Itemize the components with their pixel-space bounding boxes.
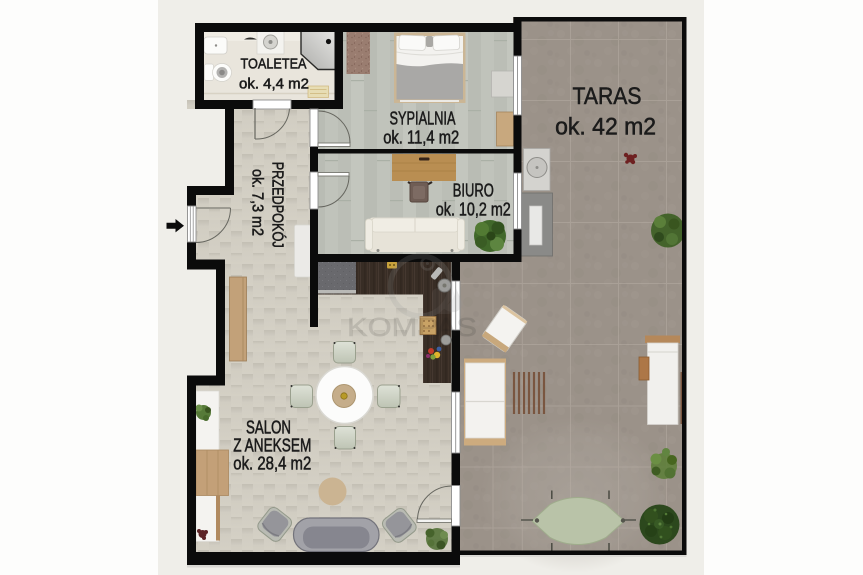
svg-text:SYPIALNIA: SYPIALNIA <box>390 109 456 129</box>
svg-text:Z ANEKSEM: Z ANEKSEM <box>233 436 311 456</box>
svg-text:TARAS: TARAS <box>573 83 642 110</box>
svg-text:PRZEDPOKÓJ: PRZEDPOKÓJ <box>269 162 286 248</box>
svg-text:SALON: SALON <box>246 418 291 438</box>
svg-text:ok. 42 m2: ok. 42 m2 <box>555 114 656 141</box>
svg-text:KOMPAS: KOMPAS <box>347 312 477 342</box>
svg-text:ok. 4,4 m2: ok. 4,4 m2 <box>239 77 309 93</box>
svg-text:ok. 10,2 m2: ok. 10,2 m2 <box>436 200 511 220</box>
svg-text:ok. 7,3 m2: ok. 7,3 m2 <box>249 169 266 236</box>
svg-text:TOALETEA: TOALETEA <box>241 57 307 73</box>
svg-text:ok. 28,4 m2: ok. 28,4 m2 <box>233 454 311 474</box>
svg-text:ok. 11,4 m2: ok. 11,4 m2 <box>383 128 459 148</box>
svg-text:BIURO: BIURO <box>453 181 494 201</box>
